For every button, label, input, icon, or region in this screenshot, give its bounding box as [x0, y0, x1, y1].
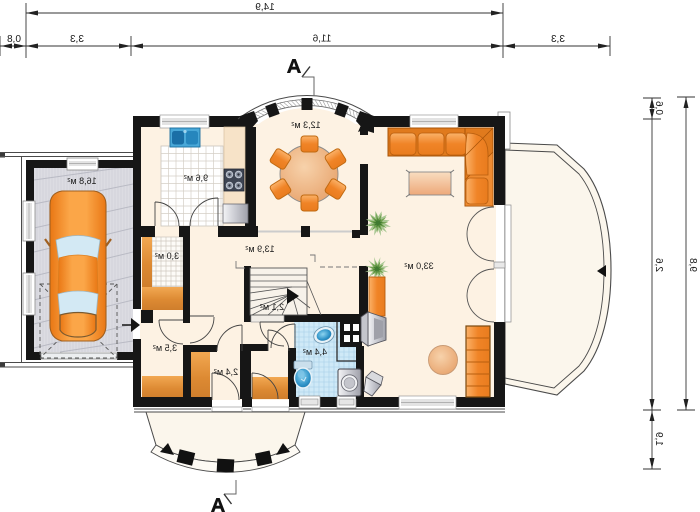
svg-text:9,8: 9,8 [687, 258, 698, 272]
svg-text:3,3: 3,3 [70, 34, 84, 45]
svg-text:9,6 м²: 9,6 м² [184, 173, 208, 183]
svg-text:13,9 м²: 13,9 м² [245, 244, 274, 254]
svg-text:2,4 м²: 2,4 м² [214, 367, 238, 377]
svg-text:16,8 м²: 16,8 м² [67, 176, 96, 186]
svg-text:4,4 м²: 4,4 м² [303, 347, 327, 357]
svg-text:1,9: 1,9 [653, 432, 664, 446]
svg-text:0,6: 0,6 [653, 101, 664, 115]
svg-text:33,0 м²: 33,0 м² [404, 261, 433, 271]
svg-text:0,8: 0,8 [7, 34, 21, 45]
svg-text:2,1 м²: 2,1 м² [260, 302, 284, 312]
svg-text:3,3: 3,3 [551, 34, 565, 45]
svg-text:3,0 м²: 3,0 м² [155, 251, 179, 261]
svg-text:3,5 м²: 3,5 м² [153, 343, 177, 353]
svg-text:14,9: 14,9 [255, 2, 275, 13]
svg-text:12,3 м²: 12,3 м² [291, 120, 320, 130]
svg-text:11,6: 11,6 [312, 34, 331, 45]
svg-text:2,6: 2,6 [653, 258, 664, 272]
